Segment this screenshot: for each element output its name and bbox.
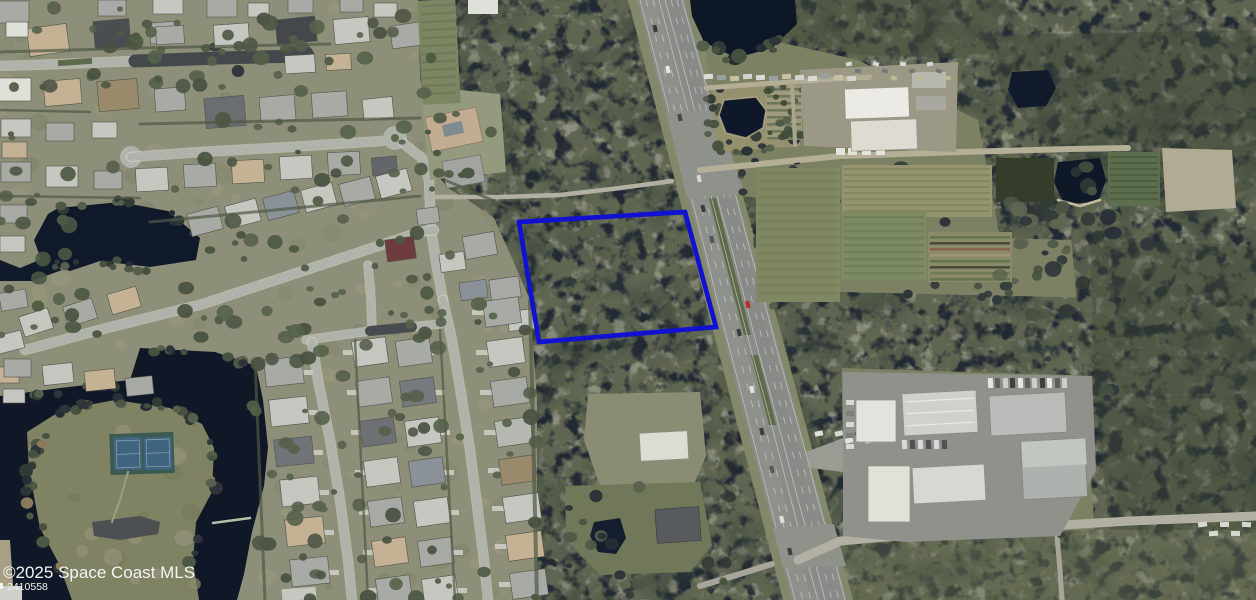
svg-text:©2025 Space Coast MLS: ©2025 Space Coast MLS <box>3 563 195 582</box>
svg-text:2410558: 2410558 <box>7 581 48 593</box>
